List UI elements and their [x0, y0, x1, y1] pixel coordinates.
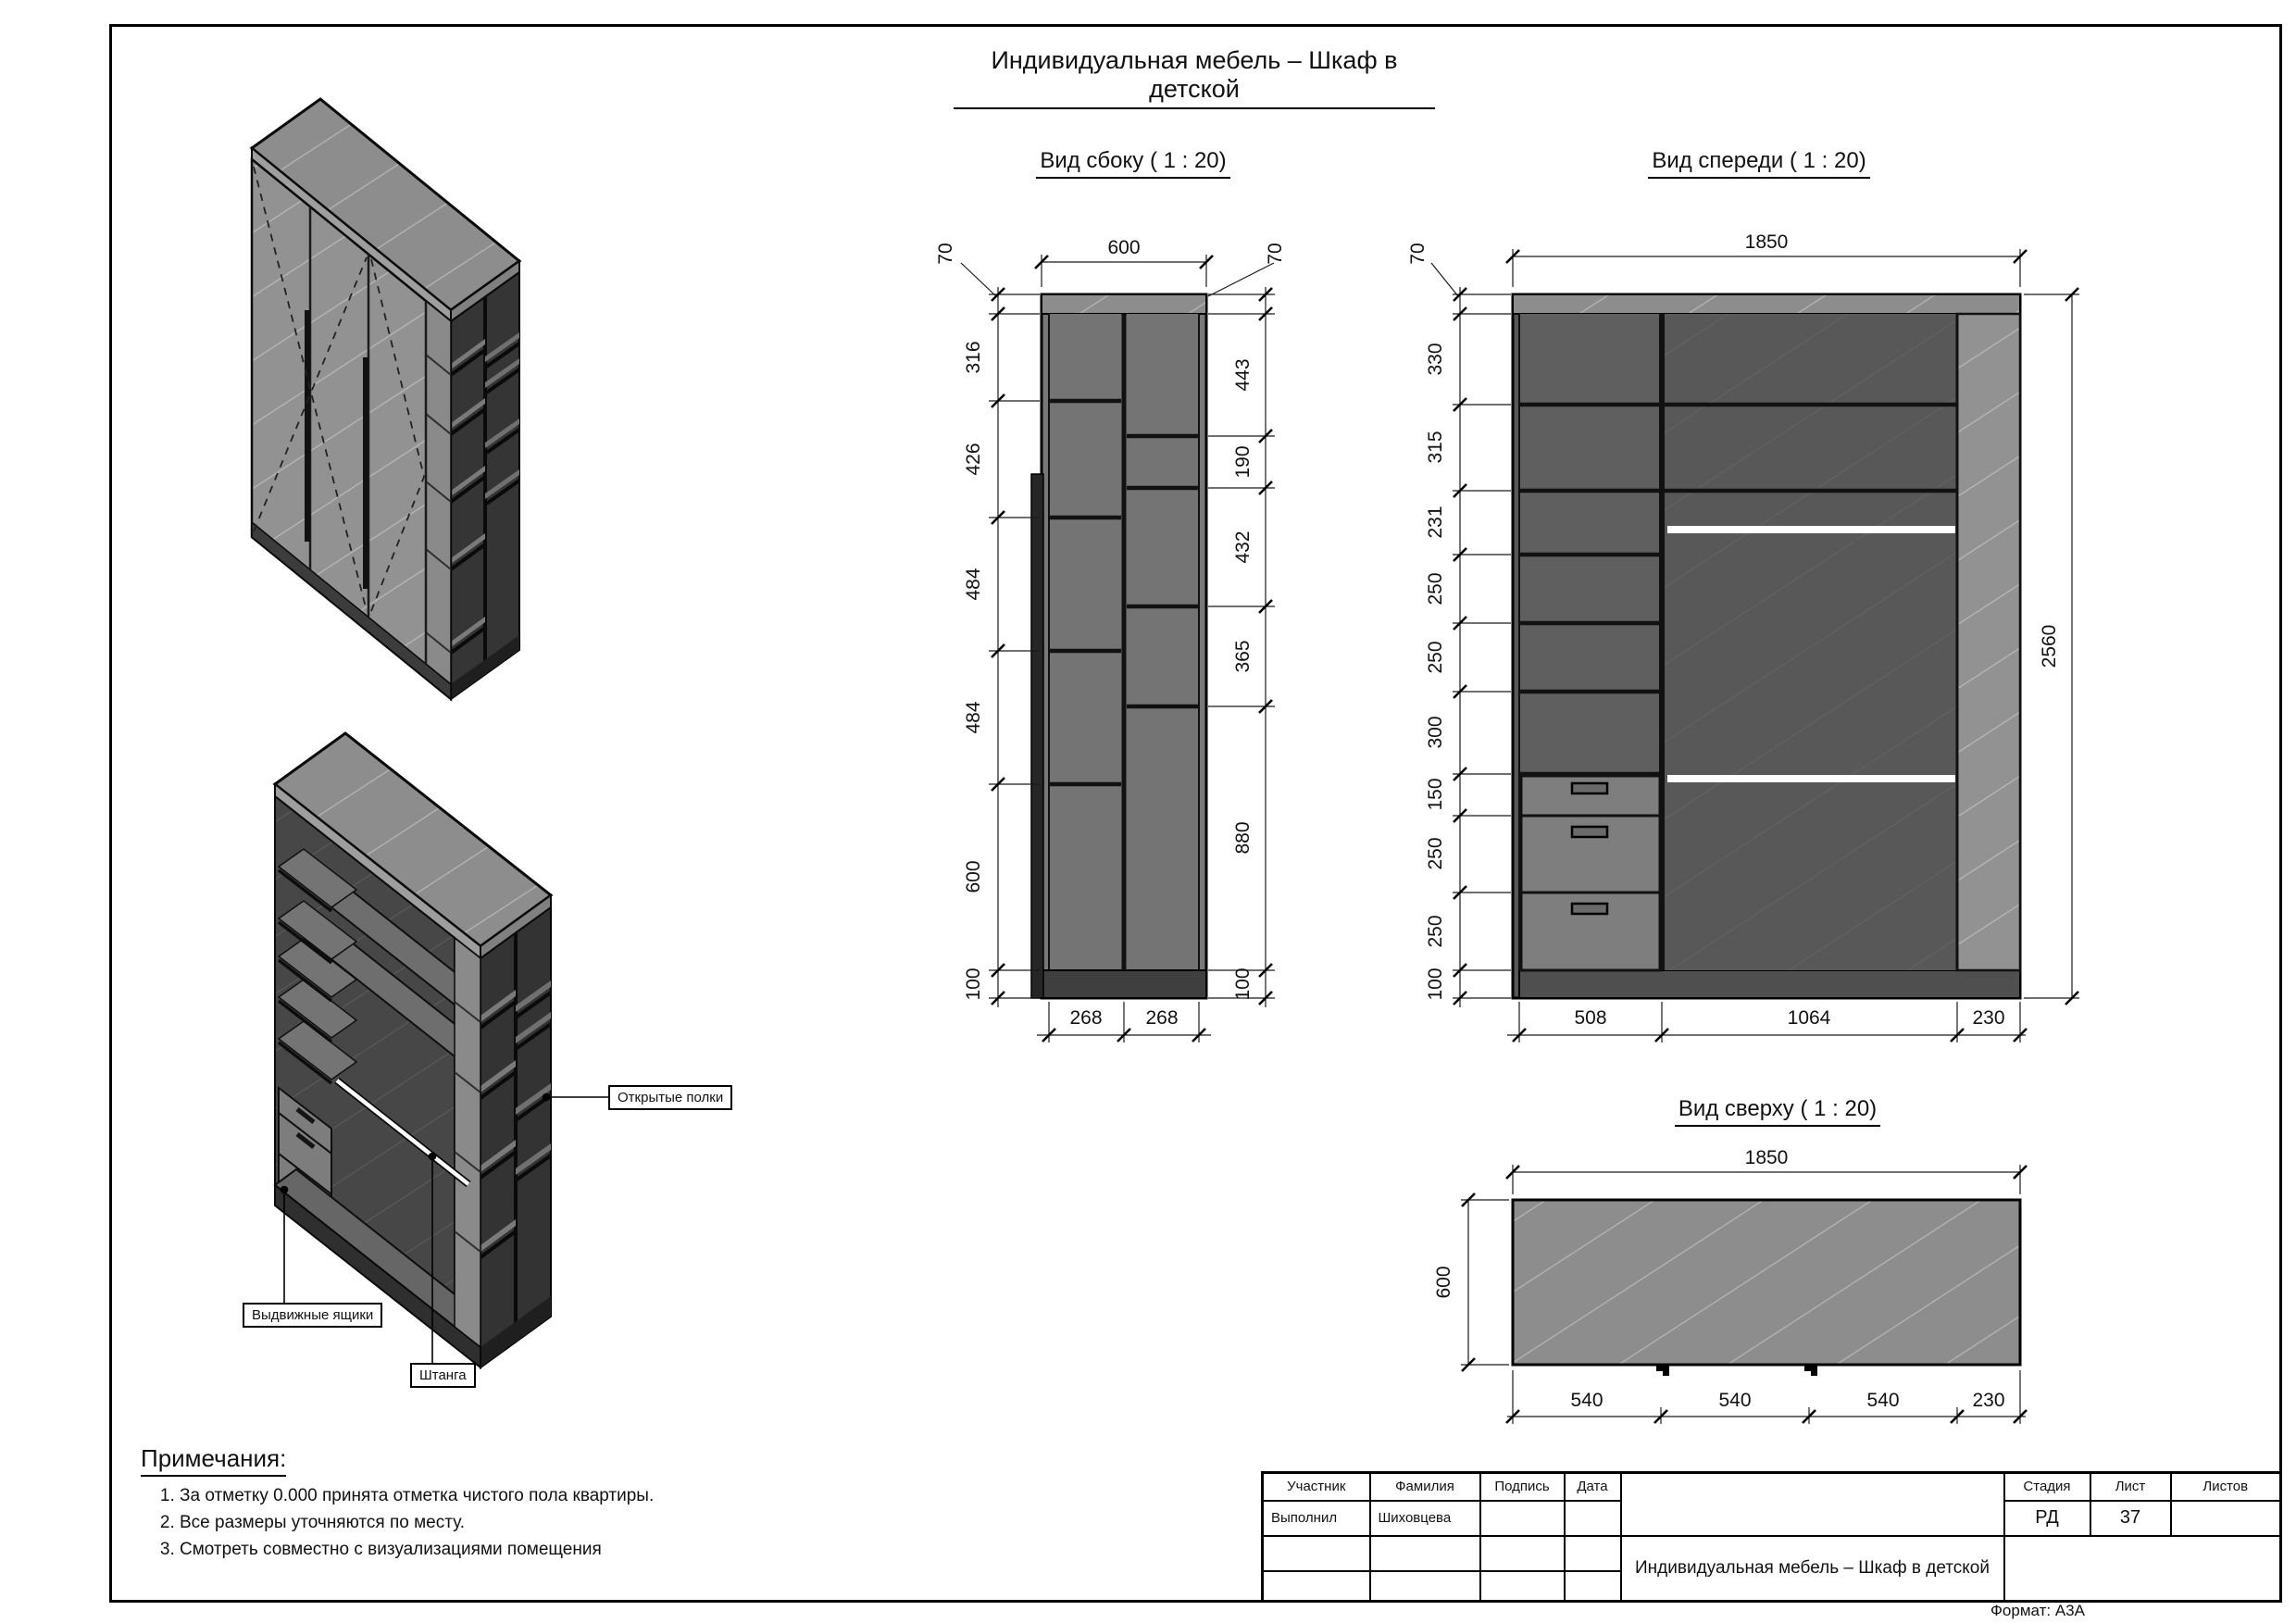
- tb-date-cell: [1565, 1501, 1621, 1536]
- svg-text:540: 540: [1866, 1390, 1899, 1411]
- front-rod-upper: [1667, 526, 1955, 533]
- isometric-open-view: [130, 514, 889, 1440]
- tb-project-title: Индивидуальная мебель – Шкаф в детской: [1621, 1536, 2004, 1602]
- tb-empty: [1565, 1536, 1621, 1571]
- svg-text:70: 70: [1407, 243, 1429, 264]
- front-view-drawing: 1850 70 2560 330 315 231 250 250 300 150…: [1407, 213, 2148, 1065]
- svg-text:268: 268: [1069, 1007, 1102, 1029]
- svg-text:484: 484: [963, 568, 984, 600]
- svg-text:443: 443: [1232, 358, 1254, 391]
- side-door-edge: [1031, 474, 1043, 998]
- tb-surname: Шиховцева: [1370, 1501, 1480, 1536]
- svg-text:268: 268: [1145, 1007, 1178, 1029]
- tb-header-date: Дата: [1565, 1473, 1621, 1501]
- svg-text:250: 250: [1425, 837, 1446, 869]
- top-view-drawing: 1850 600 540 540 540 230: [1407, 1148, 2148, 1454]
- front-side-panel: [1957, 314, 2020, 970]
- tb-header-surname: Фамилия: [1370, 1473, 1480, 1501]
- svg-text:70: 70: [935, 243, 956, 264]
- notes-list: За отметку 0.000 принята отметка чистого…: [141, 1486, 715, 1560]
- tb-signature-cell: [1480, 1501, 1565, 1536]
- tb-header-participant: Участник: [1263, 1473, 1370, 1501]
- svg-text:100: 100: [1232, 968, 1254, 1000]
- svg-text:230: 230: [1972, 1390, 2004, 1411]
- tb-header-sheet: Лист: [2090, 1473, 2171, 1501]
- front-rod-lower: [1667, 775, 1955, 782]
- svg-text:250: 250: [1425, 641, 1446, 673]
- svg-defs: [0, 0, 9, 9]
- callout-rod: Штанга: [410, 1363, 476, 1388]
- side-view-title: Вид сбоку ( 1 : 20): [1013, 148, 1254, 179]
- svg-text:600: 600: [1433, 1266, 1454, 1298]
- svg-text:250: 250: [1425, 572, 1446, 605]
- svg-text:540: 540: [1570, 1390, 1603, 1411]
- tb-empty: [1370, 1571, 1480, 1602]
- svg-text:432: 432: [1232, 531, 1254, 563]
- tb-empty: [1263, 1536, 1370, 1571]
- svg-text:2560: 2560: [2039, 625, 2060, 668]
- title-block-table: Участник Фамилия Подпись Дата Стадия Лис…: [1261, 1471, 2282, 1603]
- side-view-drawing: 600 70 70 316 426 484 484 600 100 443 19…: [907, 213, 1305, 1065]
- tb-stage-value: РД: [2004, 1501, 2090, 1536]
- tb-header-stage: Стадия: [2004, 1473, 2090, 1501]
- tb-empty-main: [1621, 1473, 2004, 1536]
- svg-text:300: 300: [1425, 716, 1446, 748]
- svg-text:316: 316: [963, 341, 984, 373]
- tb-header-signature: Подпись: [1480, 1473, 1565, 1501]
- svg-text:880: 880: [1232, 821, 1254, 854]
- tb-sheets-value: [2171, 1501, 2281, 1536]
- top-view-title: Вид сверху ( 1 : 20): [1657, 1096, 1898, 1127]
- tb-empty: [1565, 1571, 1621, 1602]
- svg-text:600: 600: [1107, 237, 1140, 258]
- svg-text:190: 190: [1232, 445, 1254, 478]
- tb-empty: [1480, 1536, 1565, 1571]
- tb-empty: [1370, 1536, 1480, 1571]
- sheet-title: Индивидуальная мебель – Шкаф в детской: [954, 46, 1435, 109]
- side-body: [1031, 294, 1206, 998]
- callout-open-shelves: Открытые полки: [608, 1085, 732, 1110]
- svg-text:70: 70: [1265, 243, 1286, 264]
- svg-text:365: 365: [1232, 640, 1254, 672]
- svg-text:231: 231: [1425, 506, 1446, 538]
- svg-text:600: 600: [963, 860, 984, 893]
- svg-text:426: 426: [963, 443, 984, 475]
- svg-text:508: 508: [1574, 1007, 1606, 1029]
- top-view-body: [1513, 1200, 2020, 1365]
- format-label: Формат: А3А: [1990, 1602, 2085, 1620]
- svg-text:315: 315: [1425, 431, 1446, 463]
- note-item: Все размеры уточняются по месту.: [180, 1513, 715, 1533]
- svg-text:150: 150: [1425, 778, 1446, 810]
- svg-text:100: 100: [1425, 968, 1446, 1000]
- front-view-title: Вид спереди ( 1 : 20): [1639, 148, 1879, 179]
- front-drawers: [1521, 776, 1660, 970]
- top-view-hinges: [1656, 1365, 1817, 1376]
- tb-empty-right: [2004, 1536, 2281, 1602]
- iso-open-right-strip: [455, 938, 480, 1347]
- callout-drawers: Выдвижные ящики: [243, 1303, 382, 1328]
- svg-text:1850: 1850: [1745, 231, 1789, 253]
- svg-text:1064: 1064: [1788, 1007, 1831, 1029]
- tb-role: Выполнил: [1263, 1501, 1370, 1536]
- svg-text:1850: 1850: [1745, 1147, 1789, 1168]
- svg-text:100: 100: [963, 968, 984, 1000]
- notes-heading: Примечания:: [141, 1444, 715, 1473]
- svg-text:540: 540: [1718, 1390, 1751, 1411]
- drawing-sheet: 600 70 70 316 426 484 484 600 100 443 19…: [0, 0, 2296, 1623]
- notes-block: Примечания: За отметку 0.000 принята отм…: [141, 1444, 715, 1567]
- front-body: [1513, 294, 2020, 998]
- iso-open-side-shelves: [480, 907, 551, 1367]
- tb-empty: [1263, 1571, 1370, 1602]
- tb-header-sheets: Листов: [2171, 1473, 2281, 1501]
- svg-text:250: 250: [1425, 915, 1446, 947]
- title-block: Участник Фамилия Подпись Дата Стадия Лис…: [1261, 1471, 2282, 1603]
- tb-empty: [1480, 1571, 1565, 1602]
- svg-text:330: 330: [1425, 343, 1446, 375]
- tb-sheet-value: 37: [2090, 1501, 2171, 1536]
- svg-text:484: 484: [963, 701, 984, 733]
- svg-text:230: 230: [1972, 1007, 2004, 1029]
- note-item: Смотреть совместно с визуализациями поме…: [180, 1540, 715, 1560]
- note-item: За отметку 0.000 принята отметка чистого…: [180, 1486, 715, 1506]
